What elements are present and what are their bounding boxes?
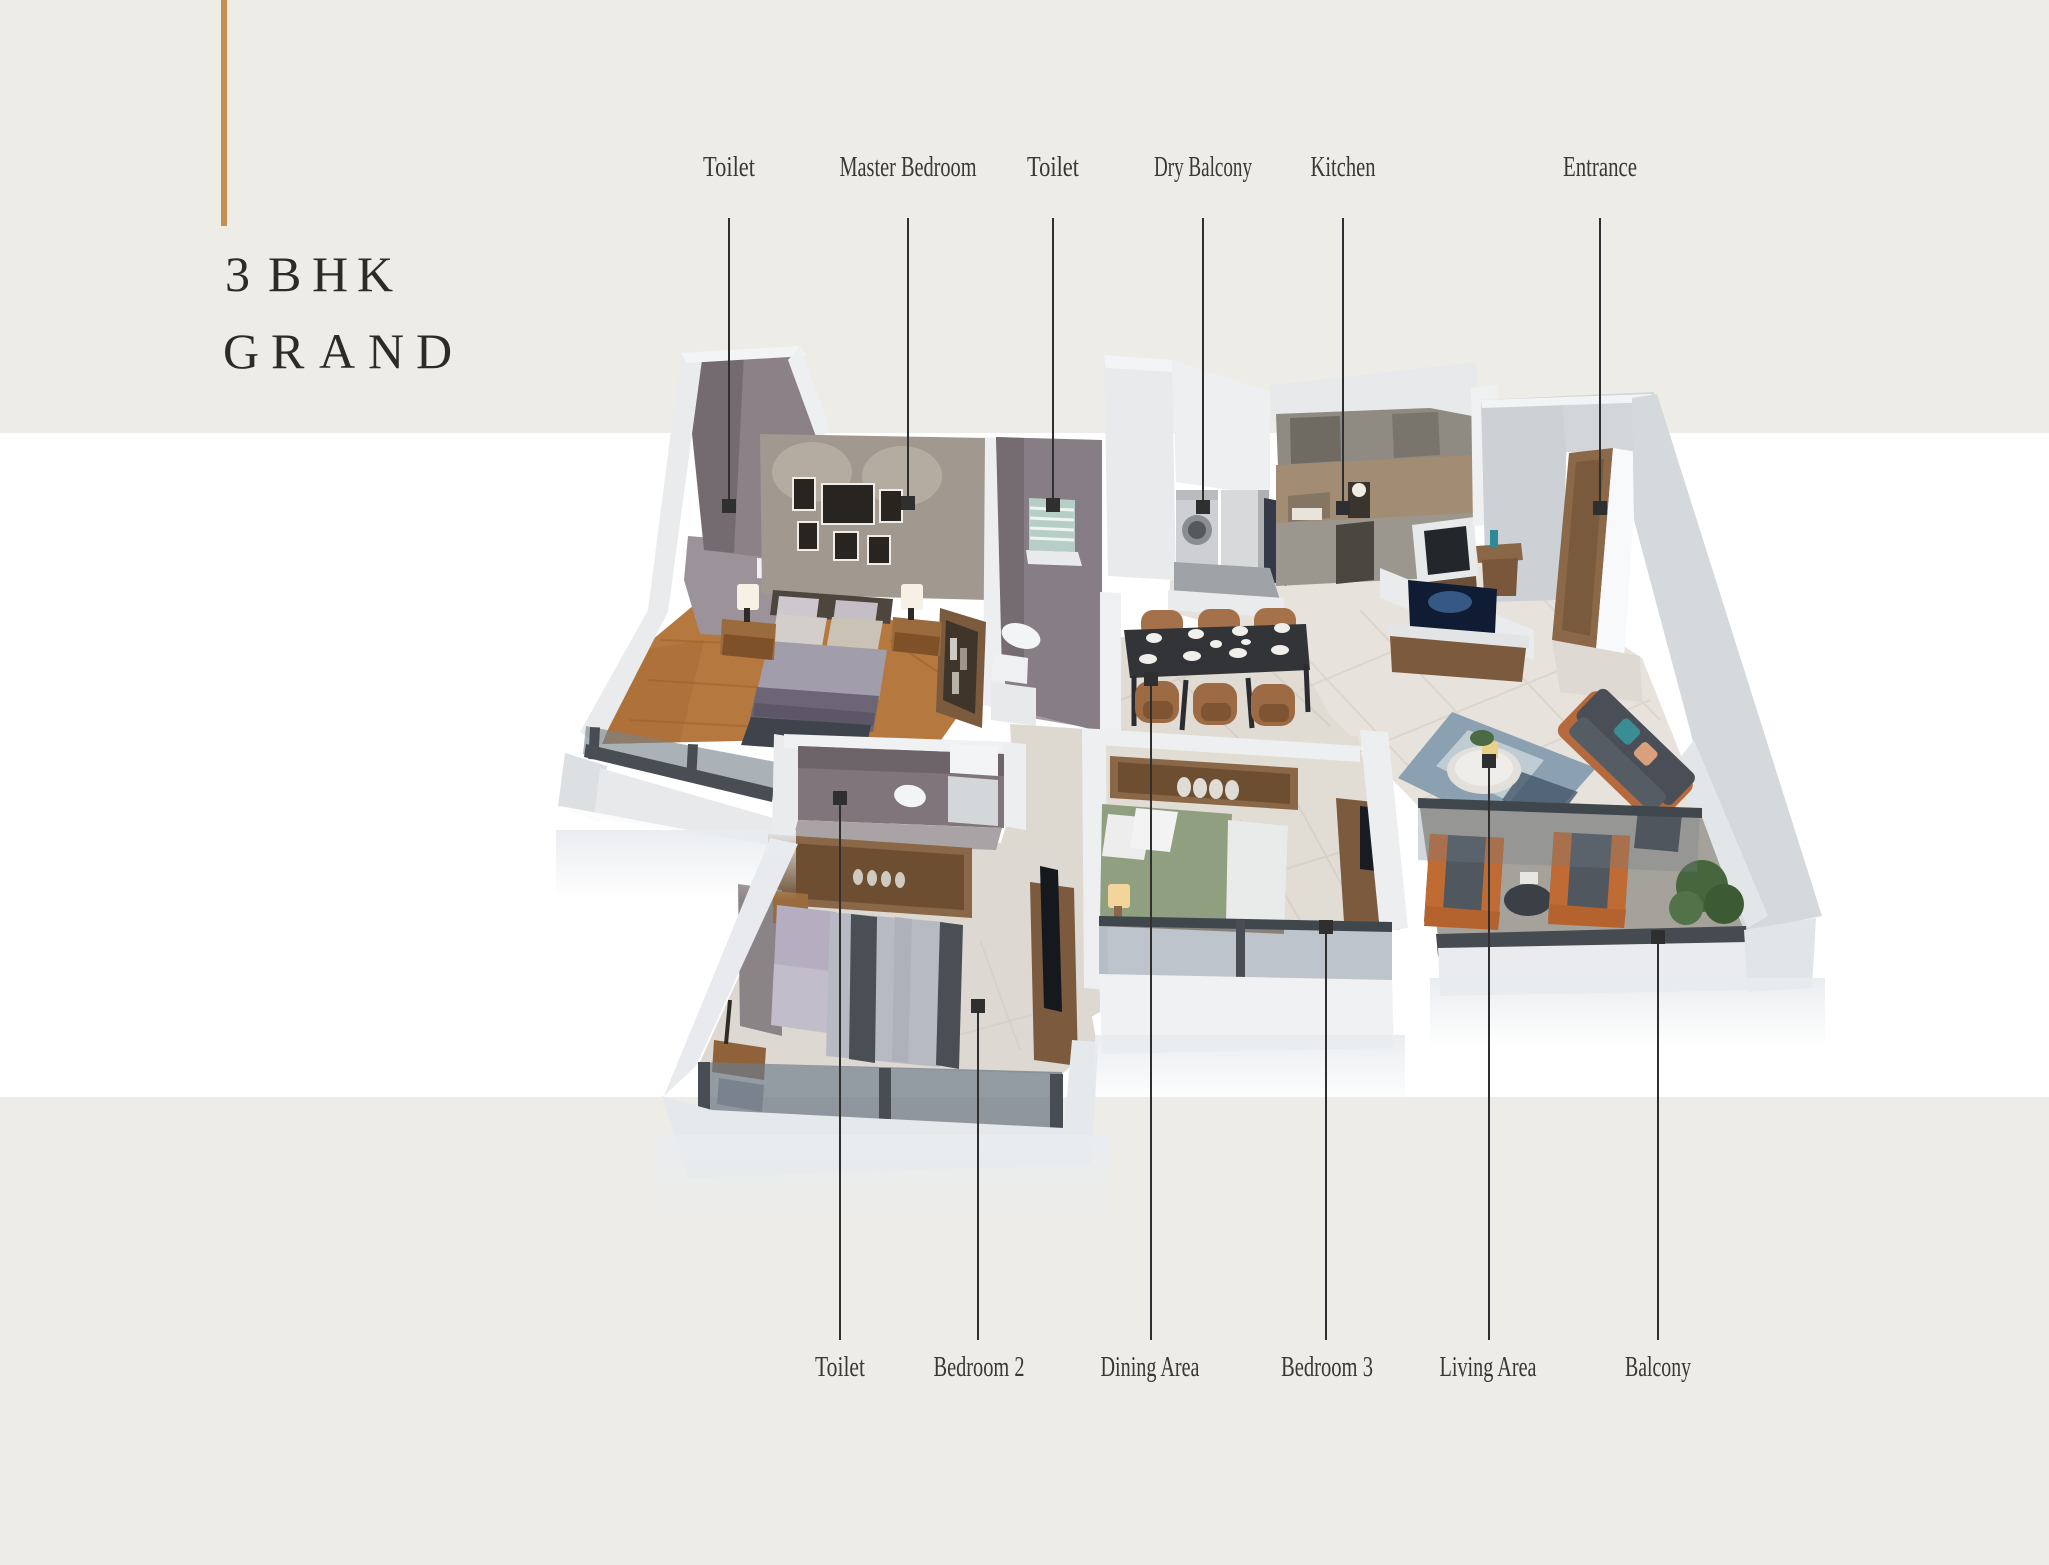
svg-text:A: A [319, 323, 355, 379]
svg-text:Balcony: Balcony [1625, 1352, 1691, 1383]
svg-text:Kitchen: Kitchen [1311, 152, 1376, 183]
svg-text:H: H [312, 246, 348, 302]
svg-text:Toilet: Toilet [1027, 152, 1079, 183]
svg-text:Bedroom 3: Bedroom 3 [1281, 1352, 1373, 1383]
svg-text:B: B [268, 246, 301, 302]
svg-text:R: R [271, 323, 305, 379]
svg-text:G: G [223, 323, 259, 379]
svg-text:Entrance: Entrance [1563, 152, 1637, 183]
svg-text:Dining Area: Dining Area [1101, 1352, 1200, 1383]
svg-text:D: D [416, 323, 452, 379]
svg-text:Bedroom 2: Bedroom 2 [934, 1352, 1025, 1383]
svg-text:3: 3 [225, 246, 250, 302]
svg-text:N: N [368, 323, 404, 379]
svg-text:Living Area: Living Area [1440, 1352, 1537, 1383]
svg-text:K: K [357, 246, 393, 302]
svg-text:Toilet: Toilet [703, 152, 755, 183]
svg-text:Toilet: Toilet [815, 1352, 865, 1383]
svg-text:Dry Balcony: Dry Balcony [1154, 152, 1252, 183]
svg-text:Master Bedroom: Master Bedroom [840, 152, 977, 183]
